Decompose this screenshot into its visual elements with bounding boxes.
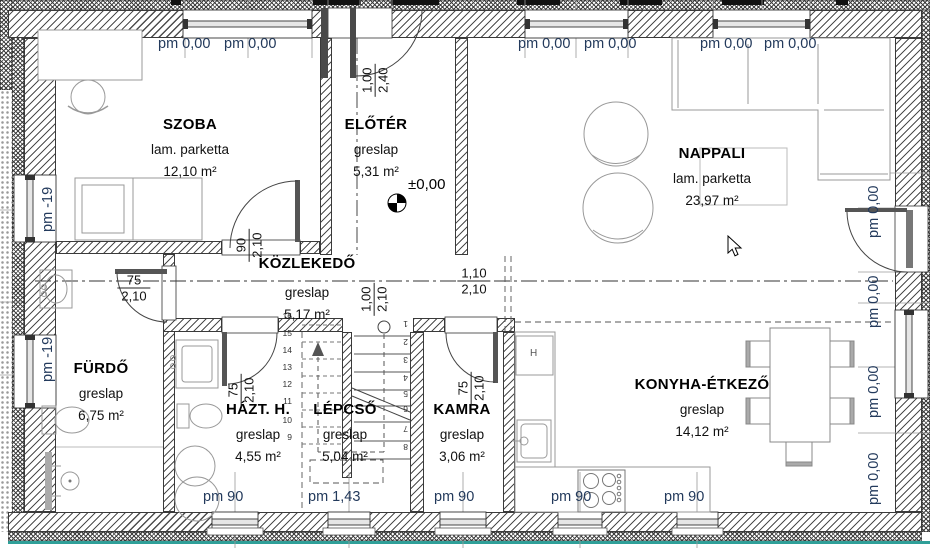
dim-width: 1,00	[360, 64, 376, 97]
stair-step-10: 10	[272, 415, 292, 425]
pm-label-7: pm -19	[40, 337, 56, 382]
dim-width: 90	[234, 229, 250, 262]
pm-label-13: pm 1,43	[308, 489, 360, 505]
stair-step-4: 4	[394, 373, 408, 383]
stair-step-11: 11	[272, 396, 292, 406]
mouse-cursor	[728, 236, 741, 256]
dim-height: 2,10	[117, 289, 150, 304]
dim-width: 75	[117, 273, 150, 289]
dim-height: 2,10	[250, 229, 265, 262]
pm-label-9: pm 0,00	[866, 276, 882, 328]
pm-label-14: pm 90	[434, 489, 474, 505]
stair-step-12: 12	[272, 379, 292, 389]
pm-label-6: pm -19	[40, 187, 56, 232]
pm-label-4: pm 0,00	[700, 36, 752, 52]
dim-width: 75	[226, 374, 242, 407]
dim-height: 2,10	[242, 374, 257, 407]
stair-step-13: 13	[272, 362, 292, 372]
pm-label-16: pm 90	[664, 489, 704, 505]
stair-step-16: 16	[272, 311, 292, 321]
pm-label-12: pm 90	[203, 489, 243, 505]
pm-label-15: pm 90	[551, 489, 591, 505]
top-dimension-ticks	[171, 0, 848, 5]
dim-label-1: 902,10	[234, 229, 265, 262]
stair-step-3: 3	[394, 355, 408, 365]
pm-label-8: pm 0,00	[866, 186, 882, 238]
window-top-szoba	[183, 10, 312, 38]
pm-label-5: pm 0,00	[764, 36, 816, 52]
stair-step-5: 5	[394, 389, 408, 399]
stair-step-2: 2	[394, 337, 408, 347]
stair-step-1: 1	[394, 319, 408, 329]
stair-step-6: 6	[394, 404, 408, 414]
dim-height: 2,40	[376, 64, 391, 97]
dim-label-4: 1,102,10	[457, 266, 490, 297]
level-marker	[388, 194, 406, 212]
nappali-furniture	[583, 38, 890, 243]
dim-label-6: 752,10	[456, 372, 487, 405]
stair-step-9: 9	[272, 432, 292, 442]
pm-label-0: pm 0,00	[158, 36, 210, 52]
terrace-door	[845, 206, 928, 272]
stair-step-15: 15	[272, 328, 292, 338]
dining-set	[746, 328, 854, 466]
windows-bottom	[207, 512, 723, 535]
dim-label-2: 752,10	[117, 273, 150, 304]
stair-step-8: 8	[394, 442, 408, 452]
dim-width: 1,10	[457, 266, 490, 282]
dim-width: 75	[456, 372, 472, 405]
level-marker-label: ±0,00	[408, 176, 445, 193]
pm-label-1: pm 0,00	[224, 36, 276, 52]
dim-height: 2,10	[375, 283, 390, 316]
pm-label-3: pm 0,00	[584, 36, 636, 52]
dim-label-5: 752,10	[226, 374, 257, 407]
szoba-furniture	[38, 30, 202, 240]
window-top-nappali-1	[525, 10, 628, 38]
pm-label-2: pm 0,00	[518, 36, 570, 52]
floor-plan: ±0,00 H SZOBAlam. parketta12,10 m²ELŐTÉR…	[0, 0, 930, 548]
dim-width: 1,00	[359, 283, 375, 316]
kitchen-fixtures	[512, 332, 710, 512]
dim-label-3: 1,002,10	[359, 283, 390, 316]
dim-height: 2,10	[472, 372, 487, 405]
window-top-nappali-2	[713, 10, 810, 38]
dim-height: 2,10	[457, 282, 490, 297]
window-right	[895, 310, 928, 398]
dim-label-0: 1,002,40	[360, 64, 391, 97]
pm-label-10: pm 0,00	[866, 366, 882, 418]
stair-step-7: 7	[394, 424, 408, 434]
fridge-label: H	[530, 348, 537, 359]
pm-label-11: pm 0,00	[866, 453, 882, 505]
stair-step-14: 14	[272, 345, 292, 355]
furdo-fixtures	[40, 270, 163, 510]
